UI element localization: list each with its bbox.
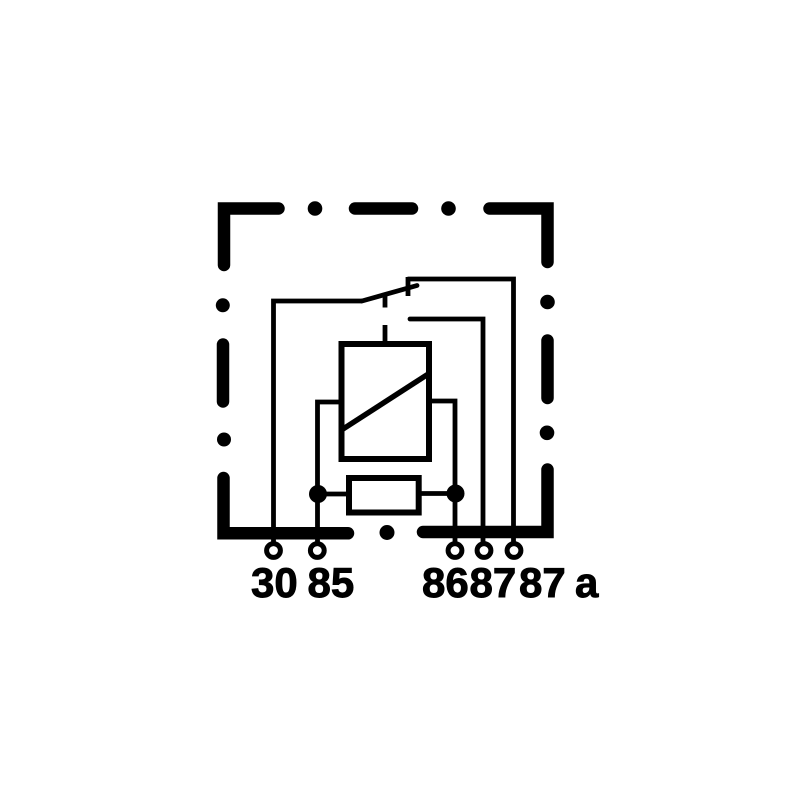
svg-text:87: 87 xyxy=(519,559,566,606)
svg-text:85: 85 xyxy=(308,559,355,606)
svg-text:30: 30 xyxy=(251,559,298,606)
svg-text:a: a xyxy=(575,559,599,606)
svg-text:87: 87 xyxy=(470,559,517,606)
svg-text:86: 86 xyxy=(422,559,469,606)
